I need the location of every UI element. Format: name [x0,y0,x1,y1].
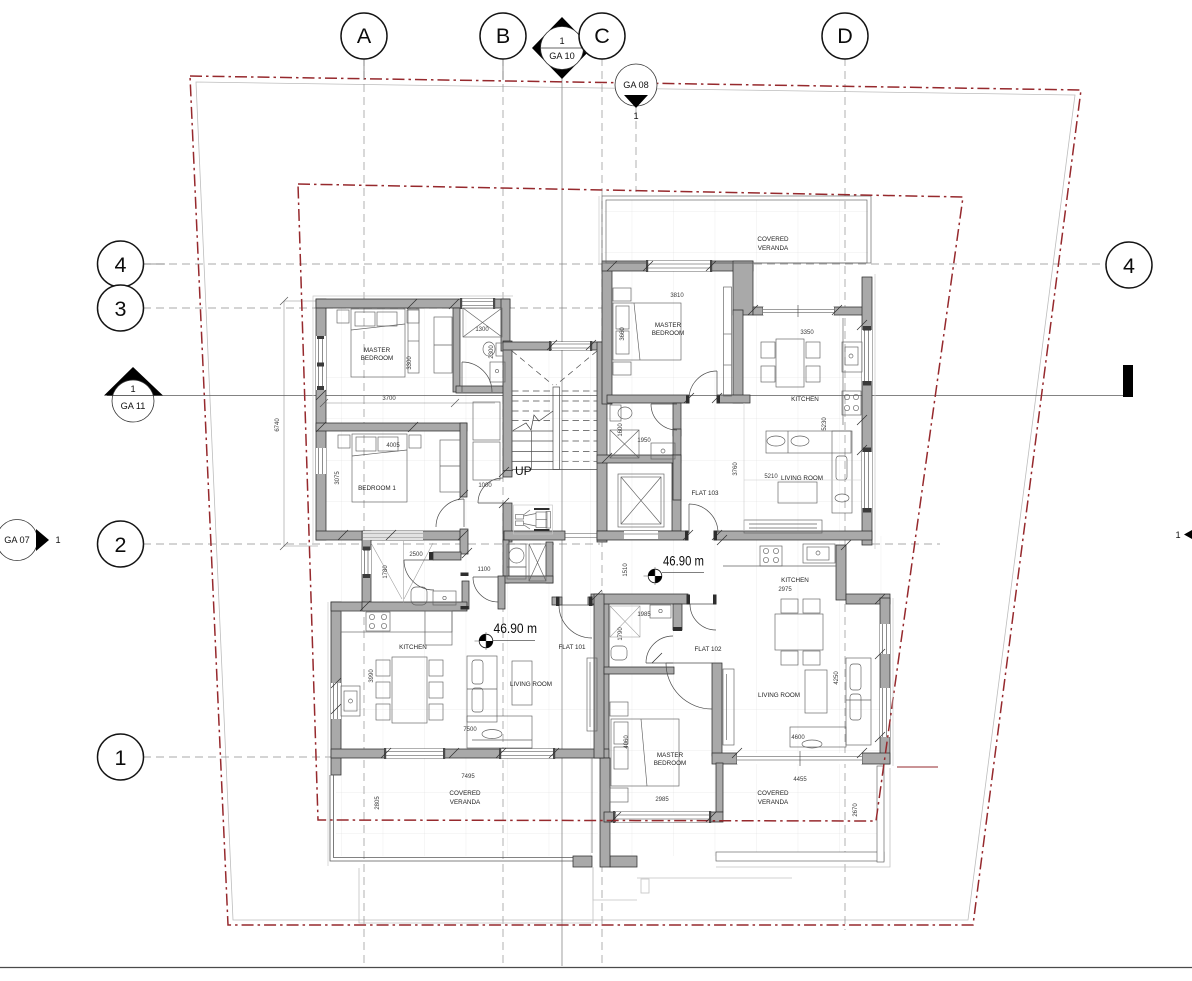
svg-text:2500: 2500 [409,552,423,558]
svg-text:1790: 1790 [618,627,624,641]
svg-text:KITCHEN: KITCHEN [791,396,819,403]
svg-text:D: D [837,24,853,48]
svg-text:B: B [496,24,510,48]
svg-text:4005: 4005 [386,443,400,449]
svg-text:GA 11: GA 11 [121,401,146,411]
svg-text:46.90 m: 46.90 m [494,621,538,636]
svg-text:GA 10: GA 10 [549,51,575,61]
svg-text:1: 1 [1175,530,1180,540]
svg-text:4600: 4600 [791,735,805,741]
svg-text:3760: 3760 [733,462,739,476]
svg-text:1300: 1300 [475,327,489,333]
svg-text:LIVING ROOM: LIVING ROOM [510,681,552,688]
svg-text:1600: 1600 [618,423,624,437]
svg-text:3300: 3300 [407,356,413,370]
svg-text:3990: 3990 [369,669,375,683]
svg-text:1950: 1950 [637,438,651,444]
svg-text:2805: 2805 [375,796,381,810]
svg-text:UP: UP [515,464,532,478]
svg-text:1510: 1510 [623,563,629,577]
svg-text:1985: 1985 [637,612,651,618]
svg-text:LIVING ROOM: LIVING ROOM [781,475,823,482]
svg-text:C: C [594,24,610,48]
svg-text:BEDROOM: BEDROOM [654,760,687,767]
svg-text:1: 1 [633,111,638,121]
svg-text:3660: 3660 [620,327,626,341]
svg-text:FLAT 103: FLAT 103 [691,490,719,497]
svg-text:BEDROOM: BEDROOM [652,330,685,337]
svg-text:5230: 5230 [822,417,828,431]
svg-text:2975: 2975 [778,587,792,593]
svg-text:COVERED: COVERED [757,790,789,797]
svg-text:1: 1 [559,36,564,46]
svg-text:FLAT 101: FLAT 101 [558,644,586,651]
svg-text:2300: 2300 [489,345,495,359]
svg-text:3700: 3700 [382,396,396,402]
svg-text:1000: 1000 [478,483,492,489]
svg-text:46.90 m: 46.90 m [663,554,704,569]
svg-text:1780: 1780 [383,565,389,579]
svg-text:KITCHEN: KITCHEN [399,644,427,651]
svg-text:6740: 6740 [275,418,281,432]
svg-text:2: 2 [115,533,127,557]
svg-text:BEDROOM: BEDROOM [361,355,394,362]
svg-text:MASTER: MASTER [657,752,684,759]
svg-text:MASTER: MASTER [655,322,682,329]
svg-text:KITCHEN: KITCHEN [781,577,809,584]
svg-text:3350: 3350 [800,330,814,336]
svg-text:3: 3 [115,297,127,321]
svg-text:FLAT 102: FLAT 102 [694,646,722,653]
svg-text:GA 07: GA 07 [4,535,30,545]
svg-text:COVERED: COVERED [449,790,481,797]
svg-text:4: 4 [115,253,127,277]
svg-text:4: 4 [1123,254,1135,278]
svg-text:BEDROOM 1: BEDROOM 1 [358,485,396,492]
svg-text:MASTER: MASTER [364,347,391,354]
svg-text:2670: 2670 [853,803,859,817]
svg-text:COVERED: COVERED [757,236,789,243]
svg-text:GA 08: GA 08 [623,80,649,90]
svg-text:VERANDA: VERANDA [450,799,481,806]
svg-text:5210: 5210 [764,474,778,480]
svg-text:4060: 4060 [624,735,630,749]
svg-text:1: 1 [130,384,135,394]
svg-text:7500: 7500 [463,727,477,733]
svg-text:1: 1 [115,746,127,770]
svg-text:2985: 2985 [655,797,669,803]
svg-text:A: A [357,24,372,48]
svg-text:VERANDA: VERANDA [758,245,789,252]
svg-text:4250: 4250 [834,671,840,685]
svg-text:3810: 3810 [670,293,684,299]
svg-text:3075: 3075 [335,471,341,485]
svg-text:VERANDA: VERANDA [758,799,789,806]
svg-text:LIVING ROOM: LIVING ROOM [758,692,800,699]
svg-text:7495: 7495 [461,774,475,780]
svg-text:4455: 4455 [793,777,807,783]
svg-text:1100: 1100 [478,567,492,573]
svg-text:1: 1 [55,535,60,545]
